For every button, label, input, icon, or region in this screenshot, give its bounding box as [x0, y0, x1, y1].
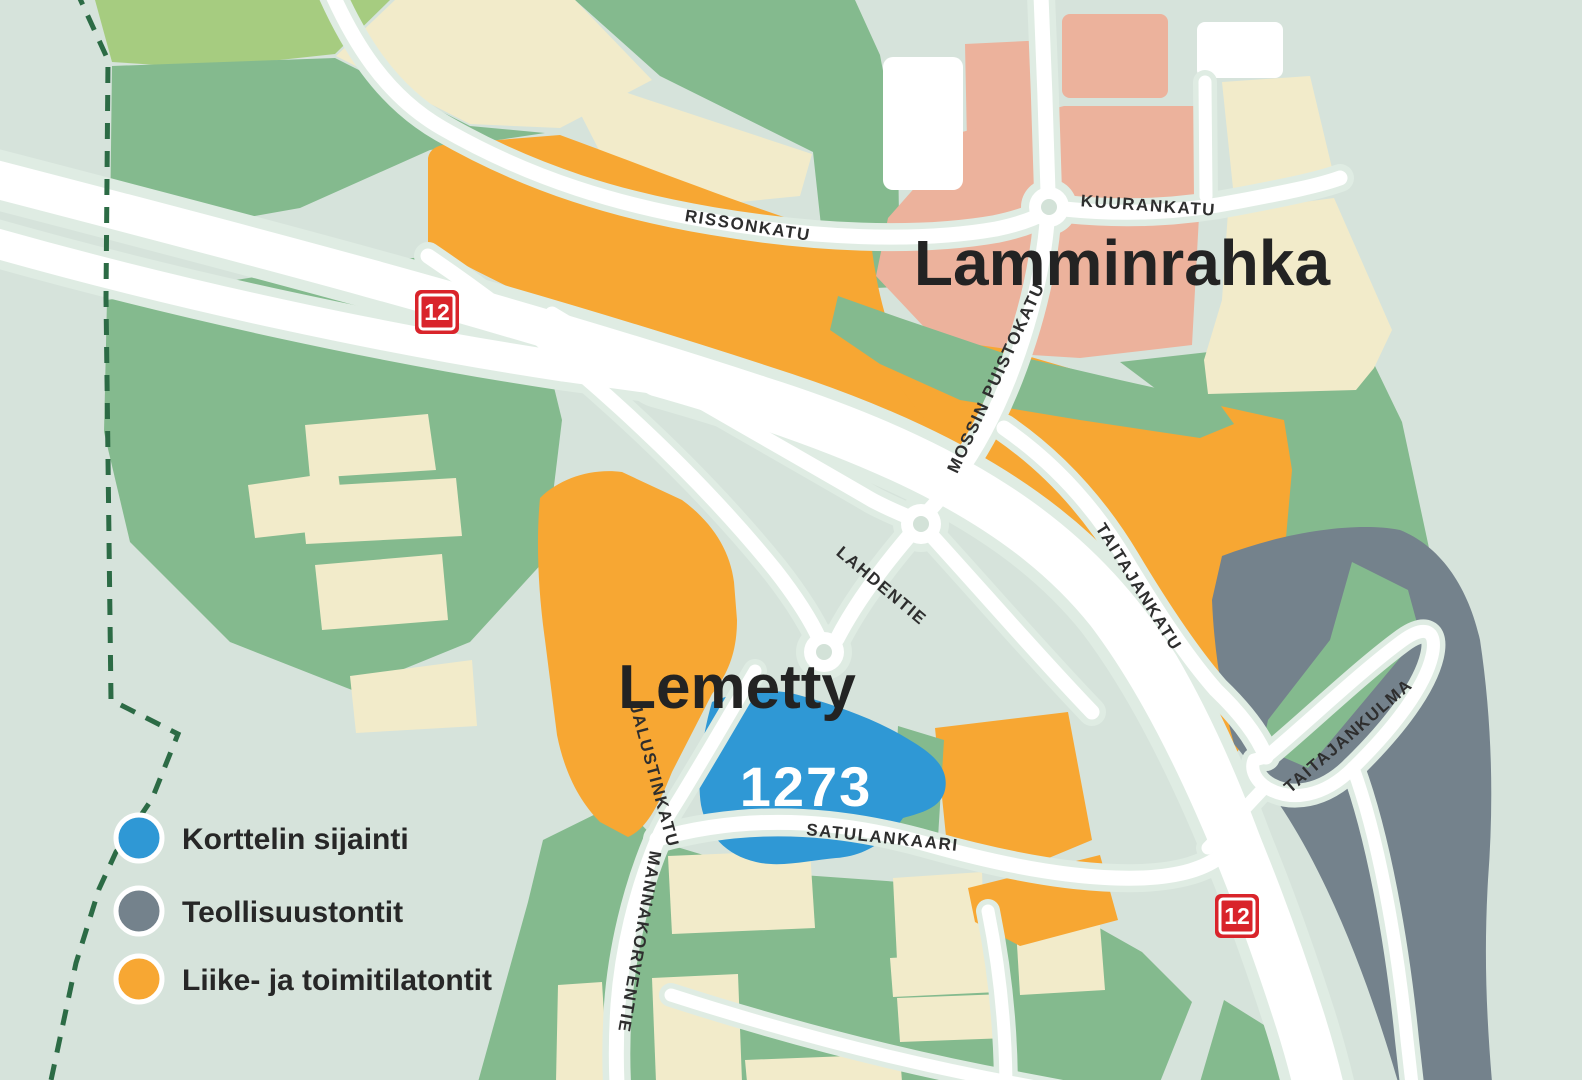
building-block: [883, 57, 963, 190]
field-area: [556, 982, 608, 1080]
field-area: [305, 414, 436, 478]
field-area: [893, 872, 985, 960]
zoning-map-canvas: RISSONKATU KUURANKATU MOSSIN PUISTOKATU …: [0, 0, 1582, 1080]
highway-badge-12: 12: [415, 290, 459, 334]
block-1273-number: 1273: [740, 755, 873, 818]
legend-swatch-orange: [116, 956, 162, 1002]
legend-label: Teollisuustontit: [182, 896, 403, 929]
roundabout: [1029, 187, 1069, 227]
legend-swatch-gray: [116, 888, 162, 934]
field-area: [300, 478, 462, 544]
building-block: [1197, 22, 1283, 78]
legend-label: Liike- ja toimitilatontit: [182, 964, 492, 997]
field-area: [890, 952, 998, 997]
residential-area: [1062, 14, 1168, 98]
road-mossin-puistokatu: [1040, 0, 1048, 192]
highway-badge-number: 12: [424, 299, 450, 325]
legend-swatch-blue: [116, 815, 162, 861]
district-title-lemetty: Lemetty: [618, 653, 856, 722]
field-area: [315, 554, 448, 630]
highway-badge-12: 12: [1215, 894, 1259, 938]
district-title-lamminrahka: Lamminrahka: [914, 227, 1331, 299]
road-side-street: [1205, 82, 1206, 196]
roundabout: [901, 504, 941, 544]
highway-badge-number: 12: [1224, 903, 1250, 929]
legend-label: Korttelin sijainti: [182, 823, 409, 856]
map-viewport: RISSONKATU KUURANKATU MOSSIN PUISTOKATU …: [0, 0, 1582, 1080]
